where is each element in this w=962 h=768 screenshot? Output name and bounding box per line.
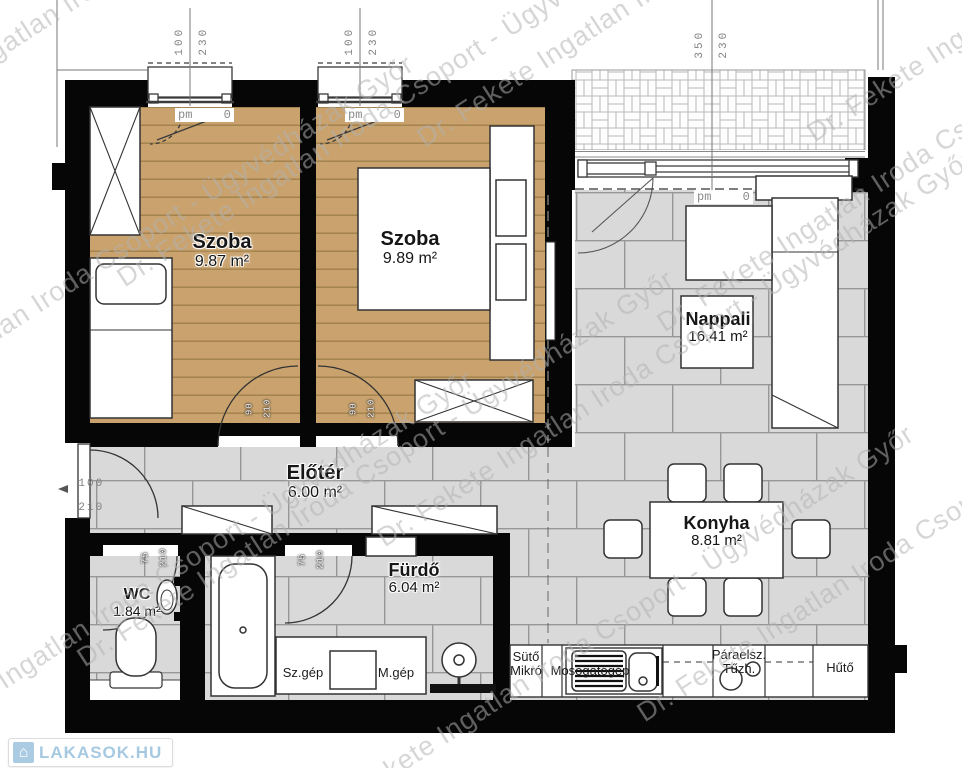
label-mgep: M.gép	[366, 666, 426, 680]
room-label-konyha: Konyha 8.81 m²	[650, 513, 783, 550]
toilet	[110, 618, 162, 688]
dim-entrance-door: 100 210	[44, 466, 104, 526]
dim-window2: 100 230	[332, 44, 392, 94]
dim-terrace-door: 350 230	[682, 47, 742, 97]
room-label-szoba1: Szoba 9.87 m²	[152, 231, 292, 271]
dim-window1: 100 230	[162, 44, 222, 94]
threshold-wc	[103, 533, 178, 545]
wardrobe-bedroom1	[90, 107, 140, 235]
dim-door-furdo: 75 210	[290, 551, 335, 595]
dim-door-szoba1: 90 210	[237, 400, 282, 444]
dim-door-szoba2: 90 210	[341, 400, 386, 444]
dim-door-wc: 75 210	[133, 549, 178, 593]
floorplan-drawing	[0, 0, 962, 768]
house-icon: ⌂	[13, 742, 34, 763]
threshold-furdo	[285, 533, 352, 545]
bathroom-washbasin	[366, 537, 416, 556]
hall-cabinet-left	[182, 506, 272, 534]
room-label-eloter: Előtér 6.00 m²	[255, 462, 375, 502]
bathtub	[211, 556, 275, 696]
logo-text: LAKASOK.HU	[39, 743, 162, 763]
radiator	[546, 242, 555, 340]
bed-single	[90, 258, 172, 418]
room-label-szoba2: Szoba 9.89 m²	[340, 228, 480, 268]
room-label-nappali: Nappali 16.41 m²	[681, 309, 755, 346]
level-mark-window2: pm 0	[345, 108, 404, 122]
hall-cabinet-right	[372, 506, 497, 534]
label-huto: Hűtő	[810, 661, 870, 675]
level-mark-living: pm 0	[694, 190, 753, 204]
label-mosogatogep: Mosogatógép	[535, 664, 645, 678]
wardrobe-bedroom2	[415, 380, 533, 422]
level-mark-window1: pm 0	[175, 108, 234, 122]
label-paraelsz-tuzh: Páraelsz. Tűzh.	[704, 648, 774, 677]
room-label-furdo: Fürdő 6.04 m²	[354, 560, 474, 597]
label-szgep: Sz.gép	[273, 666, 333, 680]
floorplan-page: Szoba 9.87 m² Szoba 9.89 m² Nappali 16.4…	[0, 0, 962, 768]
lakasok-hu-logo: ⌂ LAKASOK.HU	[8, 738, 173, 767]
